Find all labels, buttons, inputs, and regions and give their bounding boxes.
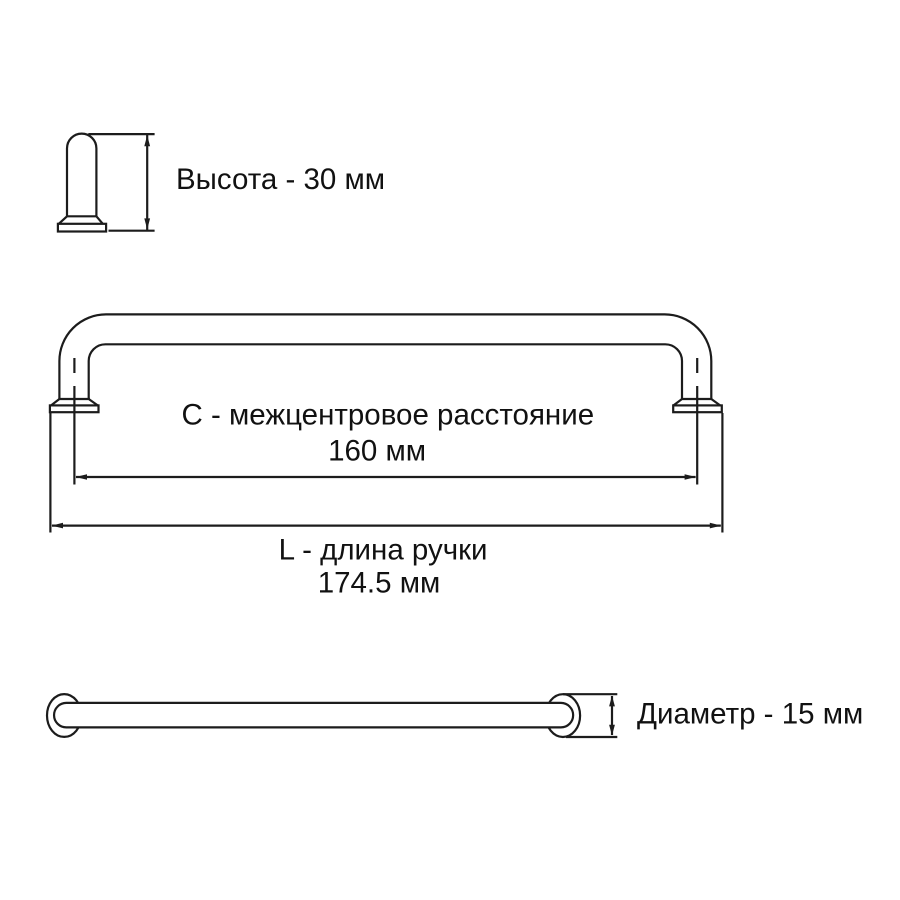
svg-text:Высота - 30 мм: Высота - 30 мм — [176, 163, 385, 196]
svg-text:L - длина ручки: L - длина ручки — [279, 534, 488, 567]
svg-text:С - межцентровое расстояние: С - межцентровое расстояние — [182, 399, 595, 432]
svg-text:174.5 мм: 174.5 мм — [318, 567, 441, 600]
svg-text:Диаметр - 15 мм: Диаметр - 15 мм — [637, 698, 863, 731]
svg-text:160 мм: 160 мм — [328, 435, 426, 468]
